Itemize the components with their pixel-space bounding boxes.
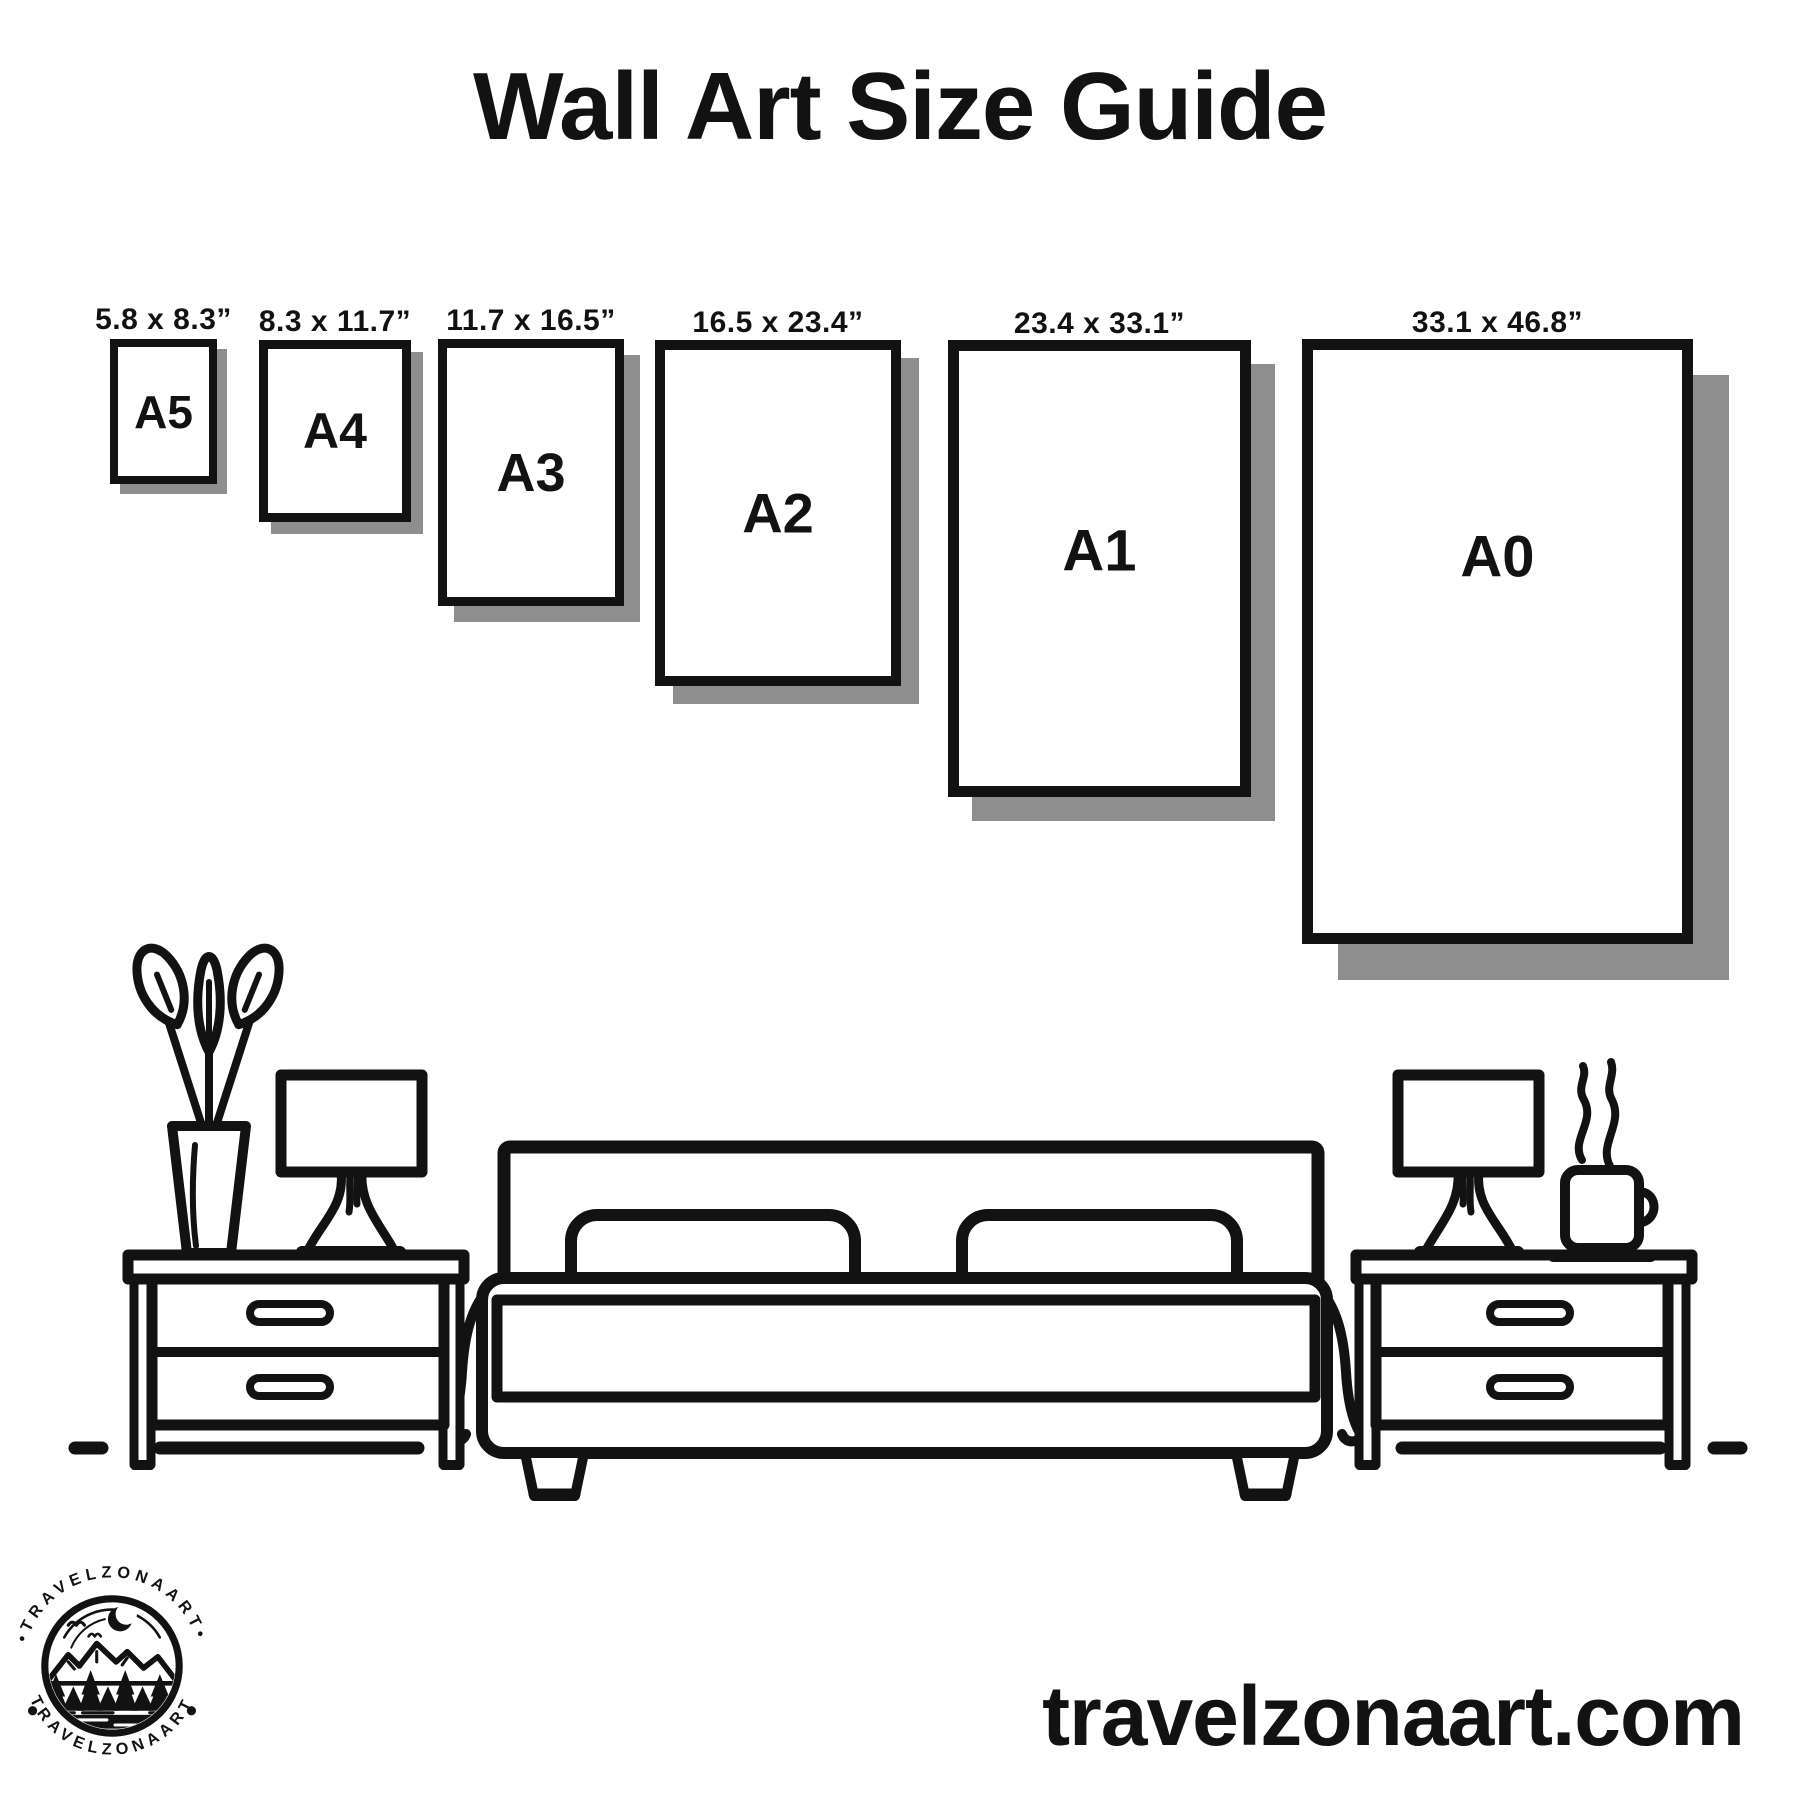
pillow-right [962,1215,1237,1325]
cup [1565,1170,1639,1248]
separator-dot [28,1706,37,1715]
drawer-handle [250,1304,330,1322]
leg [1359,1279,1376,1465]
brand-logo: •TRAVELZONAART• TRAVELZONAART [12,1556,212,1780]
headboard [504,1147,1318,1287]
lamp-icon-left [281,1075,422,1258]
drawer-handle [1490,1378,1570,1396]
sheet-drape-left [446,1286,492,1441]
lamp-icon-right [1398,1075,1539,1258]
separator-dot [187,1706,196,1715]
stem [168,1020,202,1126]
steam [1579,1066,1587,1160]
leg [443,1279,460,1465]
bed-leg-left [525,1453,584,1496]
leaf [220,941,289,1032]
saucer [1548,1252,1656,1262]
nightstand-left [128,1255,464,1470]
dimension-label: 5.8 x 8.3” [95,303,232,337]
lampshade [281,1075,422,1172]
coffee-cup-icon [1548,1062,1656,1262]
size-letter: A3 [447,442,615,504]
size-letter: A1 [959,518,1240,585]
size-letter: A0 [1313,523,1682,590]
dimension-label: 16.5 x 23.4” [692,306,863,340]
lamp-base [1414,1246,1524,1258]
stem [216,1020,250,1126]
drawer-box [1376,1279,1668,1425]
mattress [482,1278,1327,1453]
leg [134,1279,151,1465]
size-frame-a2: 16.5 x 23.4”A2 [655,340,901,686]
drawer-handle [1490,1304,1570,1322]
bed-icon [446,1147,1362,1496]
size-frame-a4: 8.3 x 11.7”A4 [259,340,411,522]
leaf [127,941,196,1032]
website-url: travelzonaart.com [1042,1668,1744,1765]
nightstand-right [1356,1255,1692,1470]
cup-handle [1637,1192,1654,1223]
page-title: Wall Art Size Guide [0,52,1800,162]
size-letter: A4 [268,402,402,460]
drawer-handle [250,1378,330,1396]
drawer-box [152,1279,444,1425]
vase [172,1126,246,1253]
tabletop [1356,1255,1692,1279]
steam [1607,1062,1615,1166]
plant-icon [127,941,288,1253]
pillow-left [571,1215,855,1325]
dimension-label: 11.7 x 16.5” [446,304,615,338]
lamp-base [296,1246,406,1258]
bed-leg-right [1236,1453,1295,1496]
size-frame-a5: 5.8 x 8.3”A5 [110,339,217,484]
size-frame-a0: 33.1 x 46.8”A0 [1302,339,1693,944]
size-frame-a1: 23.4 x 33.1”A1 [948,340,1251,797]
dimension-label: 33.1 x 46.8” [1412,306,1583,340]
leg [1669,1279,1686,1465]
size-letter: A2 [665,481,891,546]
dimension-label: 8.3 x 11.7” [259,305,411,339]
dimension-label: 23.4 x 33.1” [1014,307,1185,341]
tabletop [128,1255,464,1279]
size-frame-a3: 11.7 x 16.5”A3 [438,339,624,606]
blanket-panel [497,1300,1315,1397]
leaf [198,957,221,1053]
sheet-drape-right [1316,1286,1362,1441]
lampshade [1398,1075,1539,1172]
size-letter: A5 [118,385,209,439]
